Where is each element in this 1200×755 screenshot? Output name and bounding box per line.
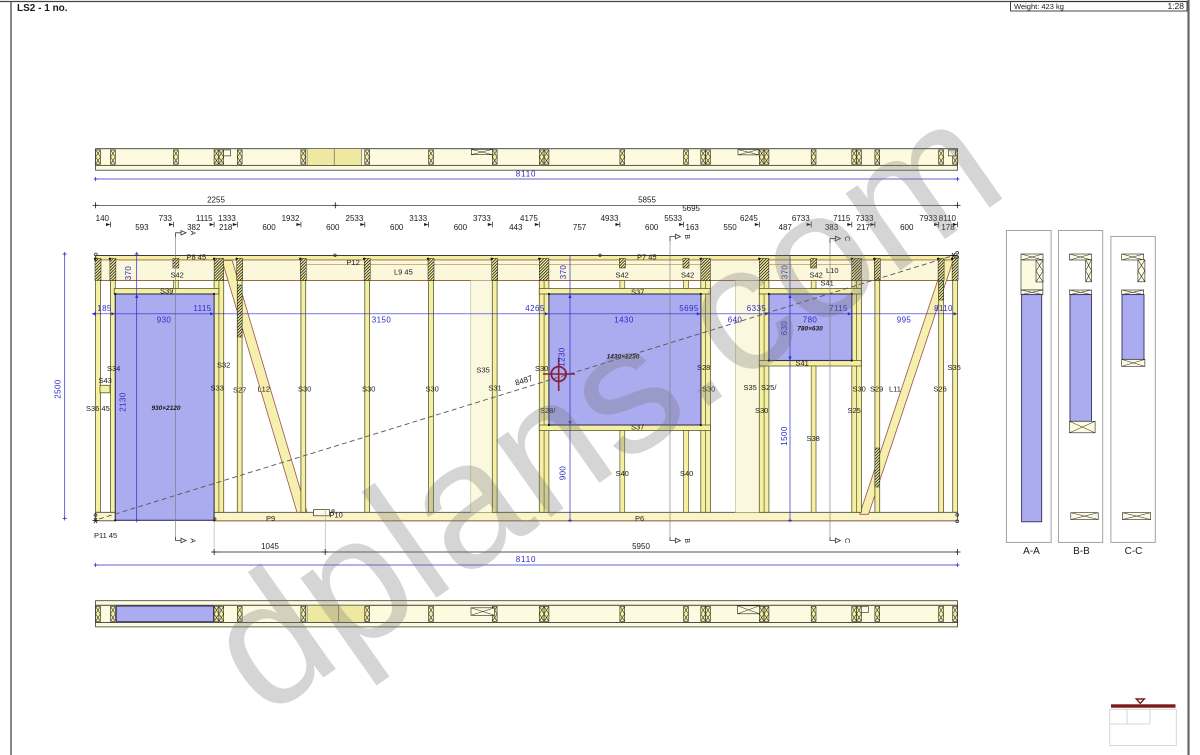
svg-text:A: A — [189, 538, 196, 543]
svg-text:LS2 - 1 no.: LS2 - 1 no. — [17, 3, 68, 14]
svg-text:S27: S27 — [233, 385, 246, 394]
svg-text:370: 370 — [559, 265, 568, 280]
svg-text:L11: L11 — [889, 384, 901, 393]
svg-text:5950: 5950 — [632, 542, 650, 551]
svg-text:P12: P12 — [347, 258, 360, 267]
svg-text:S25: S25 — [848, 406, 861, 415]
svg-text:S30: S30 — [426, 384, 439, 393]
svg-text:1500: 1500 — [780, 426, 789, 446]
svg-text:Weight: 423 kg: Weight: 423 kg — [1014, 2, 1064, 11]
svg-text:140: 140 — [96, 214, 110, 223]
svg-text:2533: 2533 — [346, 214, 364, 223]
svg-text:S42: S42 — [171, 271, 184, 280]
svg-text:1115: 1115 — [193, 304, 211, 313]
svg-text:600: 600 — [645, 223, 659, 232]
svg-text:733: 733 — [159, 214, 173, 223]
svg-text:443: 443 — [509, 223, 523, 232]
svg-text:600: 600 — [454, 223, 468, 232]
svg-text:P8 45: P8 45 — [187, 252, 207, 261]
svg-text:S29: S29 — [870, 384, 883, 393]
svg-text:3150: 3150 — [372, 316, 392, 325]
svg-text:600: 600 — [390, 223, 404, 232]
svg-text:L12: L12 — [258, 384, 271, 393]
svg-text:L9 45: L9 45 — [394, 267, 413, 276]
svg-text:A-A: A-A — [1023, 546, 1040, 557]
svg-text:5695: 5695 — [682, 204, 700, 213]
svg-text:S43: S43 — [99, 376, 112, 385]
svg-text:3733: 3733 — [473, 214, 491, 223]
svg-text:600: 600 — [326, 223, 340, 232]
svg-text:C: C — [843, 538, 850, 543]
svg-text:930: 930 — [157, 316, 172, 325]
svg-text:B-B: B-B — [1073, 546, 1090, 557]
svg-text:757: 757 — [573, 223, 587, 232]
svg-text:S36 45: S36 45 — [86, 404, 110, 413]
svg-text:S32: S32 — [217, 361, 230, 370]
svg-text:A: A — [189, 231, 196, 236]
svg-text:P6: P6 — [635, 514, 644, 523]
svg-text:S34: S34 — [107, 364, 120, 373]
svg-text:B: B — [683, 538, 690, 543]
svg-text:1932: 1932 — [282, 214, 300, 223]
svg-text:4933: 4933 — [601, 214, 619, 223]
svg-text:3133: 3133 — [409, 214, 427, 223]
svg-text:8110: 8110 — [516, 170, 536, 179]
svg-text:593: 593 — [135, 223, 149, 232]
svg-text:C-C: C-C — [1125, 546, 1143, 557]
svg-text:1:28: 1:28 — [1167, 1, 1184, 11]
svg-text:185: 185 — [97, 304, 112, 313]
svg-text:370: 370 — [124, 266, 133, 281]
svg-text:4175: 4175 — [520, 214, 538, 223]
svg-text:S35: S35 — [948, 363, 961, 372]
svg-text:4265: 4265 — [525, 304, 545, 313]
svg-text:930×2120: 930×2120 — [151, 405, 180, 412]
svg-text:600: 600 — [262, 223, 276, 232]
svg-text:P11 45: P11 45 — [94, 531, 117, 540]
svg-text:S26: S26 — [934, 384, 947, 393]
svg-text:2255: 2255 — [207, 196, 225, 205]
svg-text:1333: 1333 — [218, 214, 236, 223]
svg-text:2500: 2500 — [54, 379, 63, 399]
svg-text:S30: S30 — [298, 384, 311, 393]
svg-text:S39: S39 — [160, 286, 173, 295]
svg-text:218: 218 — [219, 223, 233, 232]
svg-text:S33: S33 — [211, 384, 224, 393]
svg-text:2130: 2130 — [119, 392, 128, 412]
svg-text:S30: S30 — [853, 384, 866, 393]
svg-text:1115: 1115 — [196, 214, 213, 223]
svg-text:S38: S38 — [807, 434, 820, 443]
svg-text:5533: 5533 — [664, 214, 682, 223]
svg-text:S30: S30 — [362, 384, 375, 393]
svg-text:8110: 8110 — [934, 304, 953, 313]
svg-text:5855: 5855 — [638, 196, 656, 205]
